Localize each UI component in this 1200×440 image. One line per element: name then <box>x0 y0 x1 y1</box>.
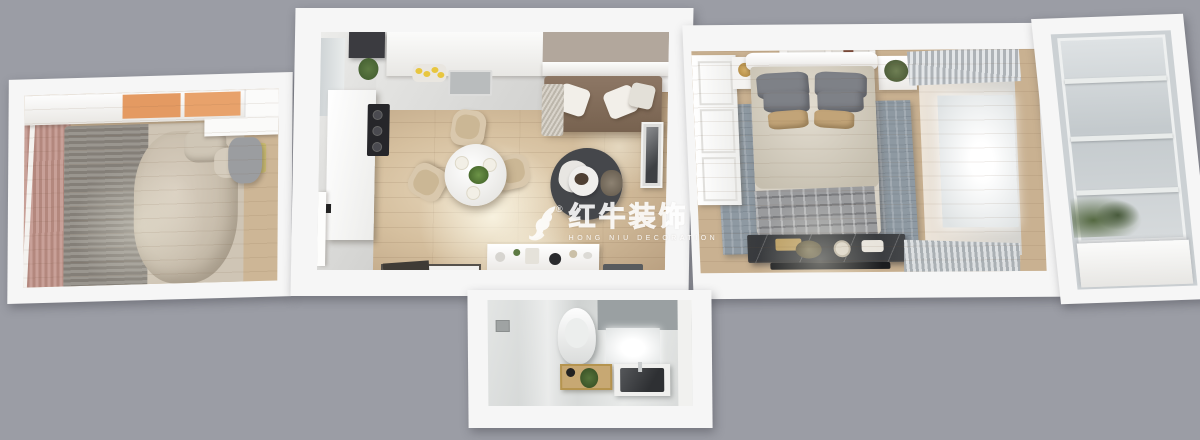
window-bar <box>1071 133 1173 142</box>
brand-watermark: ® 红牛装饰 HONG NIU DECORATION <box>524 202 718 244</box>
wardrobe-panel <box>698 61 734 105</box>
window-bar <box>1064 75 1166 84</box>
window-light <box>937 95 1019 227</box>
gold-lamp <box>738 63 753 77</box>
gray-pillow <box>756 71 810 100</box>
orange-cabinet-door <box>122 93 180 119</box>
balcony-cabinet <box>1077 240 1194 288</box>
wardrobe-panel <box>700 109 736 153</box>
living-accent-wall <box>543 32 670 62</box>
gathered-curtain <box>904 240 1020 273</box>
room-bathroom <box>467 290 712 428</box>
fruit-tray <box>412 64 446 82</box>
burner <box>373 110 383 120</box>
desk-chair <box>228 137 262 184</box>
art-frame <box>831 49 870 61</box>
partition-wall <box>677 300 692 406</box>
cooktop <box>367 104 390 156</box>
faucet <box>638 362 642 372</box>
decor-items <box>861 240 884 252</box>
floorplan-render: ® 红牛装饰 HONG NIU DECORATION <box>0 0 1200 440</box>
art-accent <box>843 49 853 52</box>
watermark-text: 红牛装饰 HONG NIU DECORATION <box>569 202 719 242</box>
doormat <box>603 264 643 270</box>
light-pool <box>738 200 903 273</box>
tv-panel <box>770 262 890 270</box>
curtain-rod <box>23 119 35 287</box>
duvet <box>133 130 238 285</box>
sofa-shelf <box>542 62 668 76</box>
bathroom-floor <box>487 300 692 406</box>
room-master-bedroom <box>682 23 1071 300</box>
white-cabinet-door <box>244 88 278 117</box>
tv-console <box>487 244 599 270</box>
lemon <box>423 71 430 77</box>
yellow-cushion <box>240 143 266 174</box>
lemon <box>415 68 422 74</box>
toilet <box>558 308 596 364</box>
art-frame <box>787 49 826 62</box>
bed-duvet <box>750 66 879 189</box>
sofa-pillow <box>628 82 657 110</box>
gray-pillow <box>817 90 864 112</box>
small-bedroom-floor <box>23 88 278 287</box>
gold-tray <box>775 239 802 251</box>
decor-item <box>583 252 592 259</box>
tan-pillow <box>767 109 809 130</box>
dried-plant <box>795 240 822 258</box>
art-accent <box>797 49 807 51</box>
single-bed <box>63 121 244 287</box>
bathroom-plant <box>580 368 598 388</box>
kettle <box>566 368 575 377</box>
decor-vase <box>549 253 561 265</box>
pillow <box>214 147 248 178</box>
decor-plant <box>513 249 520 256</box>
dining-chair <box>449 108 488 148</box>
double-bed <box>750 66 881 235</box>
nightstand-left <box>732 57 759 89</box>
wardrobe-panel <box>702 157 738 201</box>
nightstand-right <box>878 56 917 90</box>
lemon <box>437 72 444 78</box>
tan-pillow <box>814 109 855 129</box>
bedroom-rug <box>714 100 919 255</box>
shower-glass <box>606 328 660 368</box>
burner <box>372 142 382 152</box>
decor-frame <box>525 248 539 264</box>
room-balcony <box>1031 14 1200 304</box>
kitchen-sink <box>448 70 492 96</box>
side-door <box>317 192 326 266</box>
gray-pillow <box>815 71 867 99</box>
decor-branch <box>600 170 622 196</box>
plaid-throw <box>754 186 877 239</box>
nightstand-plant <box>884 60 909 82</box>
dark-basin <box>620 368 664 392</box>
range-hood <box>349 32 385 58</box>
pink-curtain <box>23 120 70 287</box>
plate <box>466 186 480 200</box>
orange-cabinet-door <box>184 91 240 117</box>
wall-cabinet-shelf <box>25 88 279 125</box>
plate <box>455 156 469 170</box>
striped-blanket <box>63 124 148 288</box>
light-pool <box>63 150 214 287</box>
desk <box>204 116 278 136</box>
brand-name: 红牛装饰 <box>569 202 719 232</box>
pillow <box>184 128 226 163</box>
wall-art <box>779 49 876 65</box>
brand-subtitle: HONG NIU DECORATION <box>569 235 719 242</box>
room-kitchen-living <box>290 8 693 296</box>
room-small-bedroom <box>7 72 292 304</box>
wardrobe <box>692 55 742 205</box>
round-vase <box>833 240 851 257</box>
gathered-curtain <box>907 49 1021 86</box>
gray-pillow <box>763 90 810 112</box>
throw-blanket <box>541 84 564 136</box>
marble-dresser <box>747 234 906 263</box>
decor-bowl <box>569 250 577 258</box>
balcony-plant <box>1070 193 1144 237</box>
burner <box>372 126 382 136</box>
headboard <box>745 52 878 71</box>
sheer-curtain <box>918 69 1022 256</box>
leaning-picture-frame <box>640 122 663 188</box>
decor-plate <box>495 252 505 262</box>
balcony-floor <box>1051 30 1198 289</box>
bull-icon <box>524 206 558 244</box>
door-handle <box>326 204 331 213</box>
wall-vent <box>496 320 510 332</box>
master-bedroom-floor <box>691 49 1046 273</box>
registered-mark: ® <box>556 204 563 214</box>
